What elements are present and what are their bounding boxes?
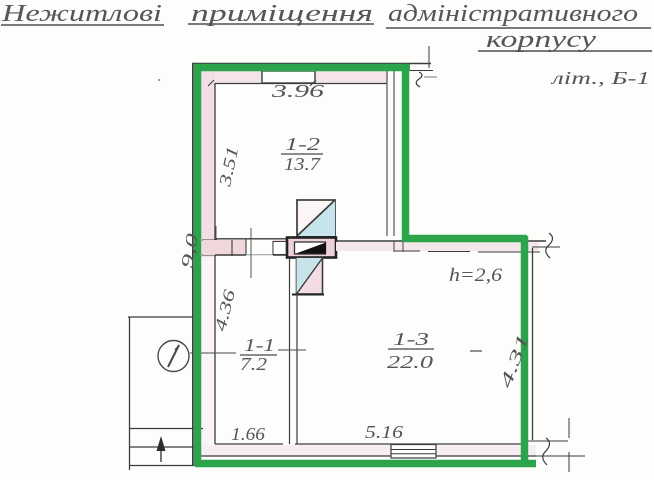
svg-text:приміщення: приміщення bbox=[191, 1, 373, 27]
svg-text:Нежитлові: Нежитлові bbox=[1, 1, 162, 27]
svg-text:13.7: 13.7 bbox=[284, 154, 321, 174]
svg-text:h=2,6: h=2,6 bbox=[449, 265, 503, 286]
svg-text:корпусу: корпусу bbox=[486, 27, 596, 53]
svg-text:1-3: 1-3 bbox=[393, 329, 429, 349]
svg-text:1-2: 1-2 bbox=[285, 134, 320, 154]
svg-text:1-1: 1-1 bbox=[244, 335, 275, 355]
svg-text:3.51: 3.51 bbox=[215, 145, 242, 189]
svg-text:22.0: 22.0 bbox=[387, 352, 433, 372]
svg-text:7.2: 7.2 bbox=[240, 354, 267, 374]
svg-text:3.96: 3.96 bbox=[270, 81, 324, 101]
svg-text:літ., Б-1: літ., Б-1 bbox=[550, 68, 650, 88]
svg-text:5.16: 5.16 bbox=[365, 422, 403, 442]
svg-text:адміністративного: адміністративного bbox=[388, 1, 638, 27]
svg-text:1.66: 1.66 bbox=[231, 424, 265, 444]
